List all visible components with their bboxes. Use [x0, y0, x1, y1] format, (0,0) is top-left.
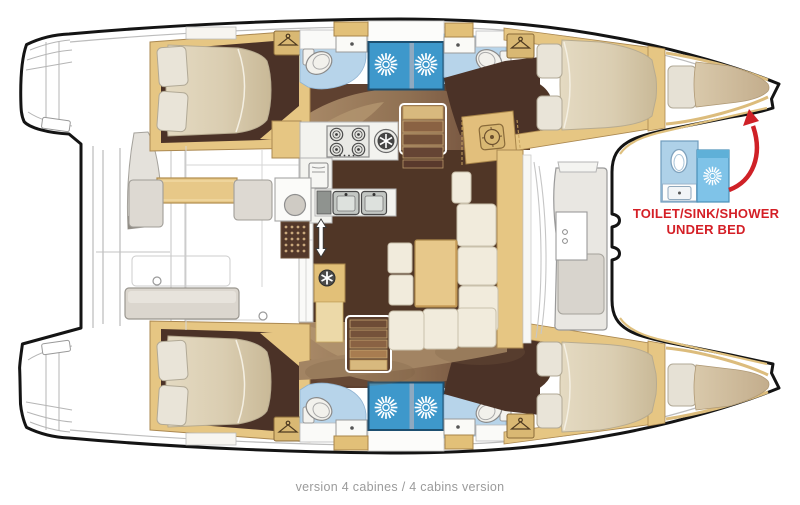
svg-text:UNDER BED: UNDER BED	[666, 222, 745, 237]
svg-text:TOILET/SINK/SHOWER: TOILET/SINK/SHOWER	[633, 206, 780, 221]
svg-text:version 4 cabines / 4 cabins v: version 4 cabines / 4 cabins version	[296, 480, 505, 494]
